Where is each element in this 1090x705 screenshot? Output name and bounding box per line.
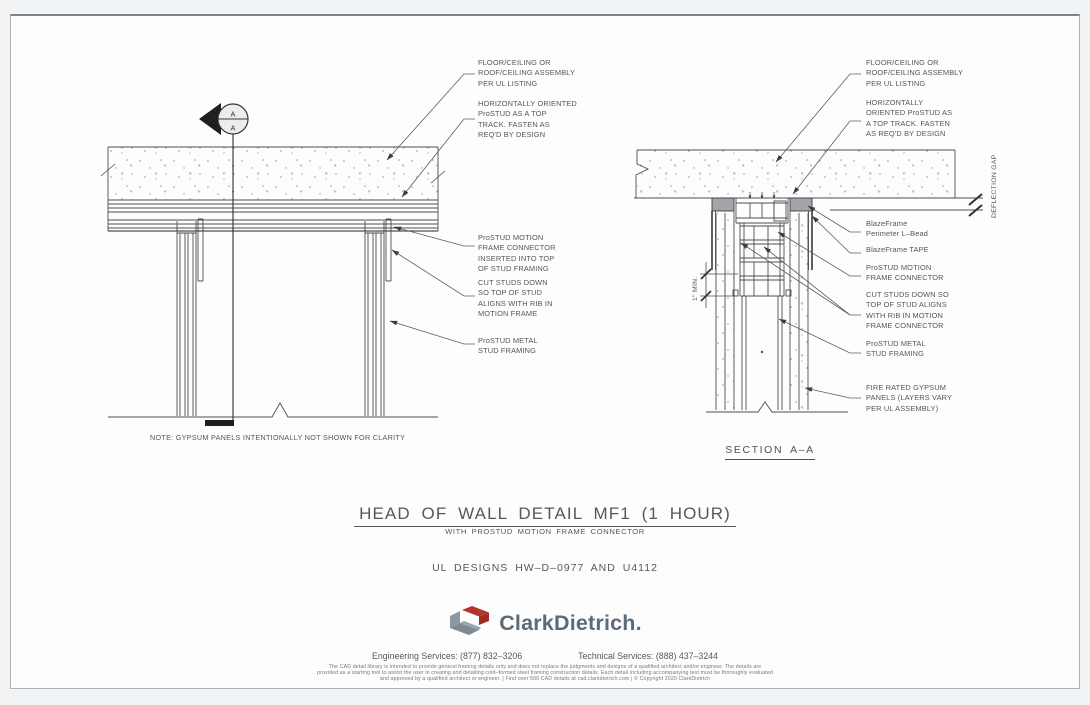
callout-top-track-right: HORIZONTALLY ORIENTED ProSTUD AS A TOP T… [866,98,952,139]
clarkdietrich-logo-icon [448,606,490,640]
callout-metal-stud-left: ProSTUD METAL STUD FRAMING [478,336,538,357]
cad-sheet-canvas: A A [0,0,1090,705]
left-slab-concrete [108,147,438,200]
callout-top-track-left: HORIZONTALLY ORIENTED ProSTUD AS A TOP T… [478,99,577,140]
clarkdietrich-logo: ClarkDietrich. [0,604,1090,642]
gypsum-note: NOTE: GYPSUM PANELS INTENTIONALLY NOT SH… [150,433,405,442]
section-aa-title: SECTION A–A [725,444,814,460]
callout-fire-rated-gypsum: FIRE RATED GYPSUM PANELS (LAYERS VARY PE… [866,383,952,414]
callout-floor-ceiling-left: FLOOR/CEILING OR ROOF/CEILING ASSEMBLY P… [478,58,575,89]
left-detail-drawing [101,74,475,426]
section-marker-letter-bottom: A [231,126,236,133]
clarkdietrich-wordmark: ClarkDietrich. [499,611,642,636]
callout-cut-studs-right: CUT STUDS DOWN SO TOP OF STUD ALIGNS WIT… [866,290,949,331]
callout-tape: BlazeFrame TAPE [866,245,929,255]
left-stud-assembly-2 [365,219,391,416]
callout-lbead: BlazeFrame Perimeter L–Bead [866,219,928,240]
callout-floor-ceiling-right: FLOOR/CEILING OR ROOF/CEILING ASSEMBLY P… [866,58,963,89]
section-marker-letter-top: A [231,112,236,119]
left-stud-assembly-1 [177,219,203,416]
ul-designs-label: UL DESIGNS HW–D–0977 AND U4112 [0,562,1090,574]
left-top-track [108,204,438,228]
lbead-block-left [712,198,734,211]
deflection-gap-label: DEFLECTION GAP [991,155,998,219]
motion-frame-connector [740,223,784,296]
min-dimension-label: 1" MIN. [692,276,699,301]
footer-disclaimer: The CAD detail library is intended to pr… [0,664,1090,683]
callout-motion-frame-right: ProSTUD MOTION FRAME CONNECTOR [866,263,944,284]
sheet-subtitle: WITH PROSTUD MOTION FRAME CONNECTOR [0,527,1090,536]
engineering-services-phone: Engineering Services: (877) 832–3206 [372,651,522,661]
technical-services-phone: Technical Services: (888) 437–3244 [578,651,718,661]
left-break-line [108,403,438,417]
lbead-block-right [790,198,812,211]
callout-motion-frame-left: ProSTUD MOTION FRAME CONNECTOR INSERTED … [478,233,556,274]
left-leader-lines [387,74,475,344]
callout-metal-stud-right: ProSTUD METAL STUD FRAMING [866,339,926,360]
sheet-title: HEAD OF WALL DETAIL MF1 (1 HOUR) [354,504,736,527]
callout-cut-studs-left: CUT STUDS DOWN SO TOP OF STUD ALIGNS WIT… [478,278,553,319]
